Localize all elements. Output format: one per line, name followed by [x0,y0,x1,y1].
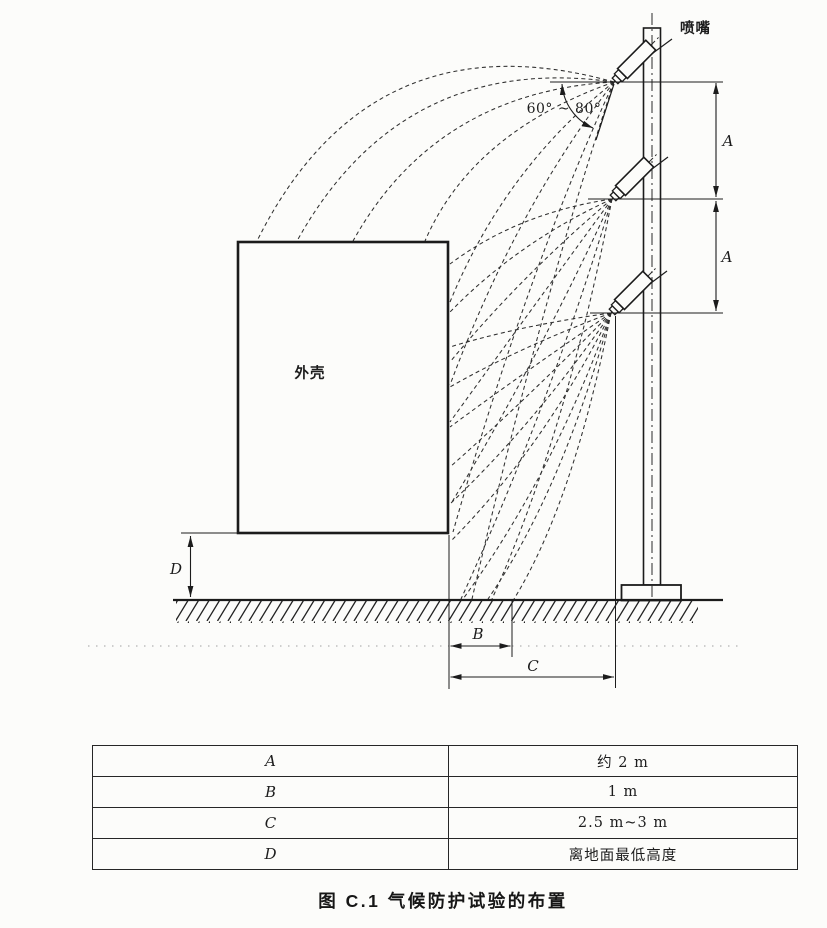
figure-caption: 图 C.1 气候防护试验的布置 [60,888,826,913]
param-cell: B [93,777,449,808]
dim-d-label: D [169,560,182,578]
value-cell: 离地面最低高度 [449,839,798,870]
scanned-standard-page: 外壳 [0,0,827,928]
value-cell: 2.5 m~3 m [449,808,798,839]
ground-hatching [176,601,698,623]
table-row-c: C 2.5 m~3 m [93,808,798,839]
weather-test-diagram: 外壳 [0,0,827,700]
table-row-a: A 约 2 m [93,746,798,777]
spray-arcs-bottom-nozzle [450,313,611,599]
dim-a-lower-label: A [720,248,733,266]
table-row-d: D 离地面最低高度 [93,839,798,870]
value-cell: 1 m [449,777,798,808]
param-cell: D [93,839,449,870]
enclosure-label: 外壳 [295,364,326,382]
table-row-b: B 1 m [93,777,798,808]
param-cell: A [93,746,449,777]
nozzle-label: 喷嘴 [680,19,711,37]
enclosure-box [238,242,448,533]
param-cell: C [93,808,449,839]
dim-a-upper-label: A [721,132,734,150]
dimension-table: A 约 2 m B 1 m C 2.5 m~3 m D 离地面最低高度 [92,745,798,870]
dim-c-label: C [527,657,539,675]
pole-base [622,585,682,601]
value-cell: 约 2 m [449,746,798,777]
spray-arcs-middle-nozzle [450,199,612,599]
spray-angle-label: 60° ~ 80° [527,101,602,117]
dim-b-label: B [471,625,483,643]
